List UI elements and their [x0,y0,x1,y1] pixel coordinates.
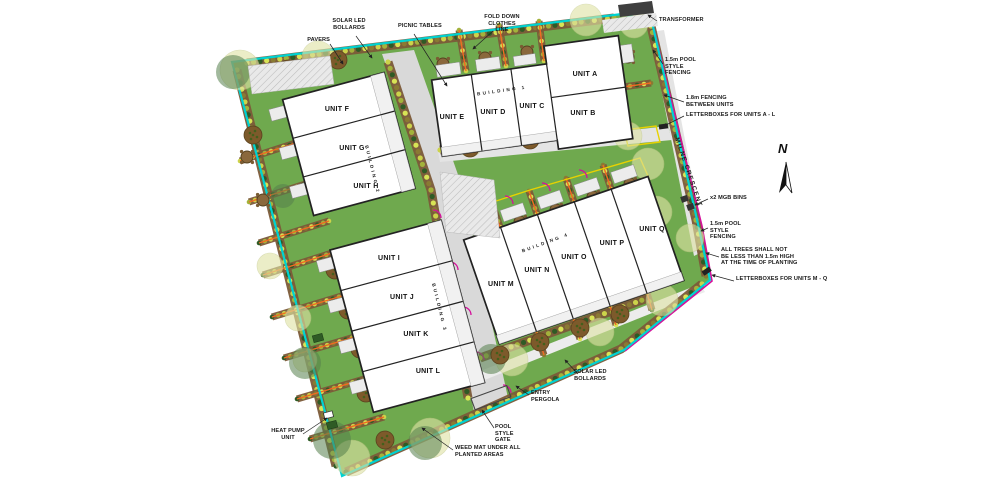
annotation-entry-pergola: ENTRY PERGOLA [531,390,559,403]
unit-label-b: UNIT B [570,110,595,117]
annotation-weed-mat: WEED MAT UNDER ALL PLANTED AREAS [455,445,521,458]
unit-label-i: UNIT I [378,255,400,262]
unit-label-d: UNIT D [480,109,505,116]
annotation-solar-led-bollards-bottom: SOLAR LED BOLLARDS [572,369,608,382]
annotation-pool-style-gate: POOL STYLE GATE [495,424,514,444]
unit-label-n: UNIT N [524,267,549,274]
annotation-transformer: TRANSFORMER [659,17,704,24]
unit-label-p: UNIT P [600,240,625,247]
annotation-fold-down-clothes-line: FOLD DOWN CLOTHES LINE [482,14,522,34]
unit-label-l: UNIT L [416,368,441,375]
annotation-fencing-between-units: 1.8m FENCING BETWEEN UNITS [686,95,734,108]
annotation-mgb-bins: x2 MGB BINS [710,195,747,202]
site-plan: UNIT A UNIT B UNIT C UNIT D UNIT E UNIT … [0,0,1000,500]
unit-label-q: UNIT Q [639,226,665,233]
unit-label-o: UNIT O [561,254,587,261]
unit-label-m: UNIT M [488,281,514,288]
annotation-pavers: PAVERS [300,37,330,44]
annotation-picnic-tables: PICNIC TABLES [398,23,442,30]
north-label: N [778,141,787,156]
annotation-letterboxes-m-q: LETTERBOXES FOR UNITS M - Q [736,276,827,283]
north-arrow-icon [779,162,792,193]
unit-label-c: UNIT C [519,103,544,110]
annotation-solar-led-bollards-top: SOLAR LED BOLLARDS [332,18,366,31]
annotation-pool-fencing-top: 1.5m POOL STYLE FENCING [665,57,696,77]
unit-label-a: UNIT A [573,71,598,78]
unit-label-j: UNIT J [390,294,414,301]
unit-label-e: UNIT E [440,114,465,121]
annotation-heat-pump: HEAT PUMP UNIT [270,428,306,441]
annotation-trees-note: ALL TREES SHALL NOT BE LESS THAN 1.5m HI… [721,247,797,267]
parking-court [440,172,500,238]
annotation-pool-fencing-mid: 1.5m POOL STYLE FENCING [710,221,741,241]
unit-label-f: UNIT F [325,106,350,113]
annotation-letterboxes-a-l: LETTERBOXES FOR UNITS A - L [686,112,775,119]
unit-label-k: UNIT K [403,331,428,338]
unit-label-g: UNIT G [339,145,365,152]
